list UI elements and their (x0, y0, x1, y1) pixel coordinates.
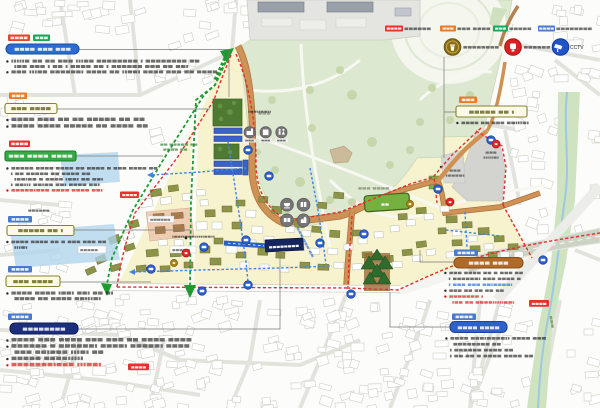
svg-text:CCTV: CCTV (570, 45, 584, 51)
